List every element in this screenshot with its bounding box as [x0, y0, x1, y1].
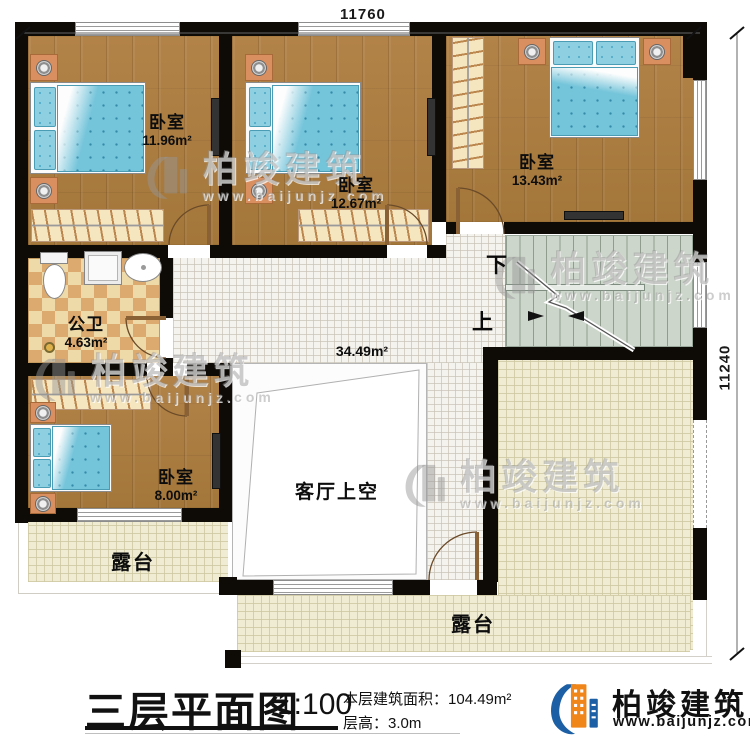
wardrobe-icon	[298, 209, 429, 242]
pillow-icon	[34, 130, 56, 170]
wardrobe-icon	[31, 209, 164, 242]
pillow-icon	[33, 428, 51, 457]
blanket-icon	[57, 85, 144, 172]
nightstand-icon	[30, 402, 56, 423]
stairs-up-label: 上	[472, 306, 493, 336]
sliding-door-window	[77, 508, 182, 522]
tv-icon	[211, 98, 220, 156]
washbasin-cabinet-icon	[84, 251, 122, 285]
nightstand-icon	[245, 54, 273, 81]
room-name: 公卫	[65, 315, 108, 335]
blanket-icon	[551, 67, 638, 136]
tv-icon	[427, 98, 436, 156]
room-label-terrace-bottom: 露台	[451, 608, 495, 637]
window	[693, 80, 707, 180]
corridor-floor	[173, 258, 446, 363]
floor-area-label: 本层建筑面积：	[343, 691, 448, 708]
terrace-edge-line	[234, 656, 712, 657]
floor-height-info: 层高：3.0m	[343, 712, 421, 733]
nightstand-icon	[518, 38, 546, 65]
wall-segment	[693, 350, 707, 420]
tv-icon	[212, 433, 221, 489]
wall-segment	[427, 245, 446, 258]
pillow-icon	[553, 41, 593, 65]
wall-segment	[504, 222, 693, 234]
room-area: 13.43m²	[512, 173, 562, 189]
tv-icon	[564, 211, 624, 220]
wall-segment	[219, 36, 232, 245]
corridor-floor-terrace-passage	[427, 363, 483, 580]
nightstand-icon	[30, 177, 58, 204]
pillow-icon	[33, 459, 51, 488]
wall-segment	[15, 22, 28, 523]
stairs-handrail	[505, 284, 645, 291]
terrace-opening	[693, 420, 707, 528]
wall-segment	[477, 580, 497, 595]
stairs-down-label: 下	[486, 249, 507, 279]
room-area: 11.96m²	[142, 133, 192, 149]
room-name: 卧室	[155, 468, 198, 488]
wall-segment	[693, 528, 707, 600]
floor-height-label: 层高：	[343, 715, 388, 732]
blanket-icon	[272, 85, 359, 172]
wall-segment	[160, 358, 173, 376]
wall-segment	[210, 245, 387, 258]
room-area: 8.00m²	[155, 488, 198, 504]
nightstand-icon	[30, 54, 58, 81]
floor-area-info: 本层建筑面积：104.49m²	[343, 688, 511, 709]
door-handle-icon	[44, 342, 55, 353]
plan-scale: 1:100	[277, 688, 352, 722]
room-name: 卧室	[142, 113, 192, 133]
brand-url: www.baijunjz.com	[613, 714, 750, 730]
room-label-terrace-left: 露台	[111, 546, 155, 575]
pillow-icon	[249, 130, 271, 170]
floor-height-value: 3.0m	[388, 715, 421, 732]
nightstand-icon	[30, 493, 56, 514]
terrace-edge-line	[234, 663, 712, 664]
wall-segment	[187, 363, 232, 376]
wall-segment	[483, 347, 693, 360]
room-label-bathroom: 公卫 4.63m²	[65, 315, 108, 350]
nightstand-icon	[643, 38, 671, 65]
title-underline	[85, 726, 338, 730]
living-void-area: 34.49m²	[336, 343, 388, 359]
pillow-icon	[249, 87, 271, 127]
window	[75, 22, 180, 36]
window	[298, 22, 410, 36]
blanket-icon	[52, 426, 110, 490]
dimension-right: 11240	[717, 347, 734, 391]
stairs-area	[505, 235, 693, 347]
room-label-living-void: 客厅上空	[295, 477, 379, 504]
wardrobe-icon	[452, 37, 484, 169]
wall-segment	[232, 580, 273, 595]
floor-area-value: 104.49m²	[448, 691, 511, 708]
pillow-icon	[34, 87, 56, 127]
room-area: 12.67m²	[331, 196, 381, 212]
room-name: 卧室	[512, 153, 562, 173]
wall-segment	[483, 360, 498, 582]
living-void-room	[232, 363, 427, 580]
room-label-bedroom3: 卧室 13.43m²	[512, 153, 562, 188]
wall-segment	[225, 650, 241, 668]
sink-icon	[124, 253, 162, 282]
toilet-icon	[40, 252, 68, 264]
window	[693, 262, 707, 328]
wall-segment	[446, 222, 458, 234]
nightstand-icon	[245, 177, 273, 204]
room-label-bedroom1: 卧室 11.96m²	[142, 113, 192, 148]
room-area: 4.63m²	[65, 335, 108, 351]
wall-segment	[393, 580, 430, 595]
wall-segment	[15, 363, 147, 376]
brand-logo-icon	[540, 676, 606, 738]
window	[273, 580, 393, 595]
pillow-icon	[596, 41, 636, 65]
dimension-top: 11760	[340, 6, 386, 23]
room-label-bedroom2: 卧室 12.67m²	[331, 176, 381, 211]
floor-plan-canvas: 柏竣建筑 www.baijunjz.com 柏竣建筑 www.baijunjz.…	[0, 0, 750, 743]
room-label-bedroom4: 卧室 8.00m²	[155, 468, 198, 503]
room-name: 卧室	[331, 176, 381, 196]
title-underline-thin	[85, 733, 460, 734]
wall-segment	[182, 508, 232, 522]
